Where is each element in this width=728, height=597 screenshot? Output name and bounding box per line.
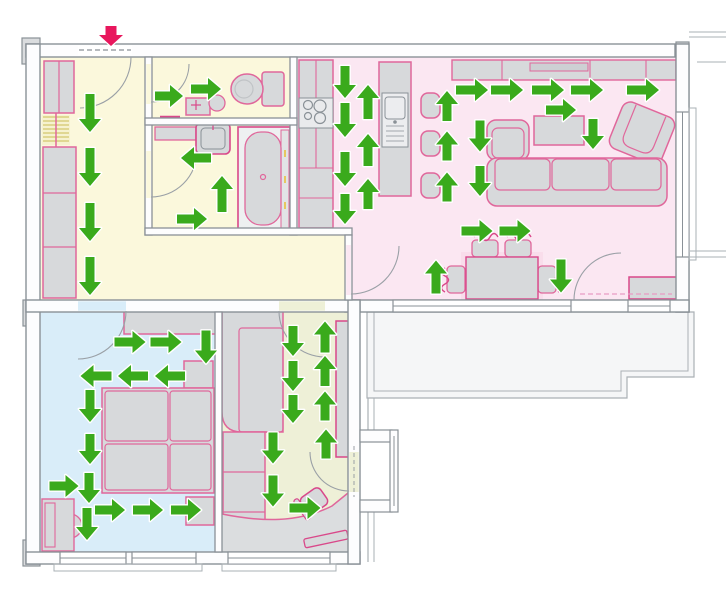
island-sink [382, 93, 408, 147]
wall [145, 118, 297, 125]
hall-cabinet [43, 147, 76, 298]
bay-wall [360, 500, 392, 512]
bed-panel [105, 391, 168, 441]
toilet-bowl [231, 74, 263, 104]
dining-chair [447, 266, 465, 293]
bay-wall [360, 430, 392, 442]
balcony-slab [367, 312, 694, 398]
bay-door-opening [349, 452, 358, 492]
wc-door-opening [146, 64, 151, 104]
dining-table [466, 257, 538, 299]
bath-door-opening [146, 151, 151, 198]
bedroom-desk [42, 499, 74, 551]
wall [348, 300, 360, 564]
bed-panel [170, 444, 211, 490]
entrance-arrow-icon [99, 26, 123, 46]
wall [290, 57, 297, 235]
bed-panel [170, 391, 211, 441]
wall [145, 228, 352, 235]
armchair [487, 120, 529, 160]
bathtub-basin [245, 132, 281, 225]
floor-plan [0, 0, 728, 597]
living-radiator [629, 277, 677, 299]
window-sill [222, 564, 336, 571]
kids-shelf [336, 321, 349, 457]
tv [530, 63, 588, 71]
dining-chair [472, 240, 498, 257]
wall [215, 312, 222, 552]
sofa-cushion [552, 159, 609, 190]
toilet-tank [262, 72, 284, 106]
island-faucet [393, 120, 397, 124]
coffee-table [534, 116, 584, 145]
bath-shelf [155, 127, 196, 140]
bar-stool [421, 93, 440, 118]
floor-plan-svg [0, 0, 728, 597]
sofa-cushion [611, 159, 661, 190]
sofa-cushion [495, 159, 550, 190]
bedroom-door-opening [78, 301, 126, 310]
nightstand [184, 361, 213, 388]
wc-sink [186, 98, 210, 115]
bed-panel [105, 444, 168, 490]
balcony-door-opening [573, 301, 620, 310]
kids-daybed [222, 308, 283, 432]
kids-door-opening [279, 301, 325, 310]
window-sill [689, 108, 696, 260]
window-sill [54, 564, 202, 571]
living-door-opening [346, 245, 351, 295]
